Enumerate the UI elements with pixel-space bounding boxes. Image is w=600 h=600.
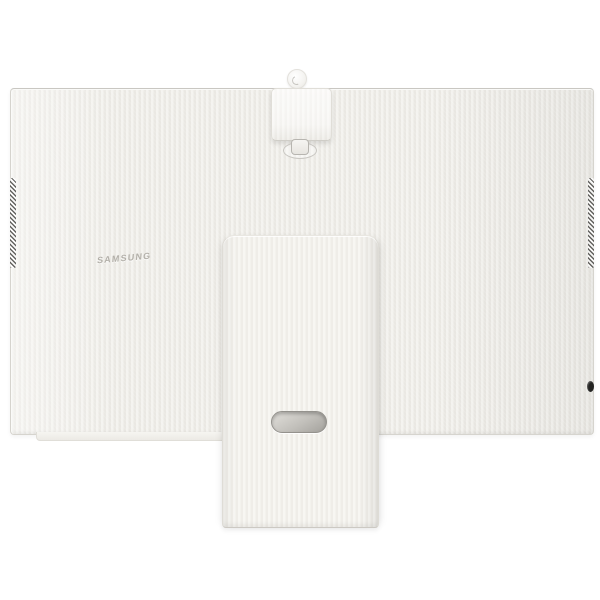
power-jog-button [587,381,594,392]
cable-routing-hole [271,411,327,433]
camera-mount-tab [291,139,309,155]
product-photo-scene: SAMSUNG [0,0,600,600]
left-vent-strip [10,178,16,268]
camera-knob-notch [291,75,303,87]
camera-knob [287,69,307,89]
stand-column [222,235,379,528]
camera-module-body [271,88,332,141]
right-vent-strip [588,178,594,268]
